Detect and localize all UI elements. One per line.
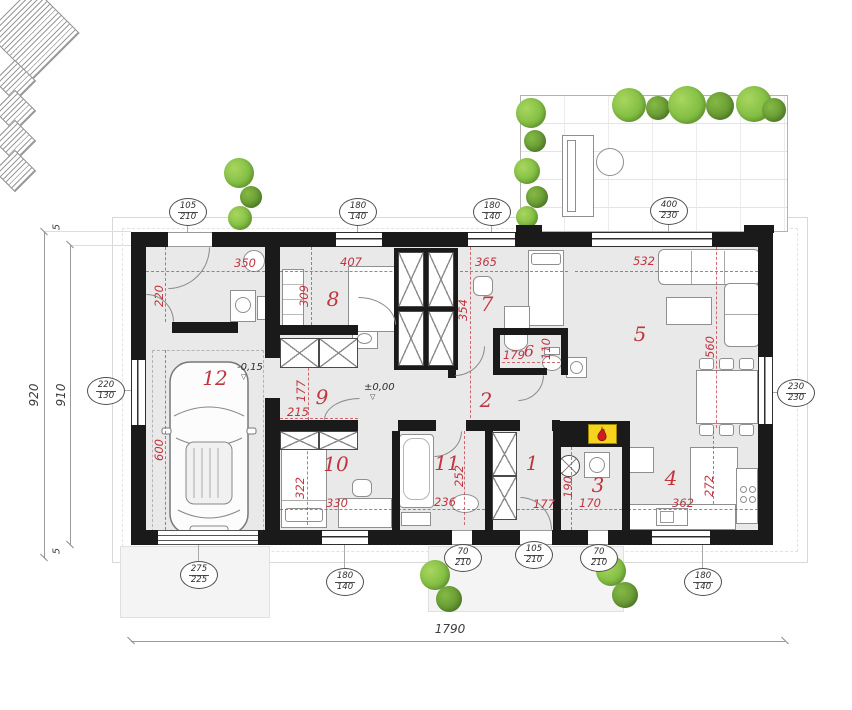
wall <box>131 530 158 545</box>
overall-height-inner: 910 <box>54 384 68 407</box>
plant-icon <box>612 582 638 608</box>
dim-ext-line <box>44 231 131 232</box>
dim-label: 350 <box>234 256 256 270</box>
wall <box>608 530 652 545</box>
leader-line <box>198 545 199 561</box>
opening-height: 140 <box>484 213 500 223</box>
wardrobe-x <box>492 432 517 476</box>
pillow <box>285 508 323 522</box>
level-marker: -0,15 <box>237 362 263 373</box>
wall <box>382 232 468 247</box>
opening-width: 70 <box>592 548 607 559</box>
bathtub-inner <box>403 438 430 500</box>
plant-icon <box>668 86 706 124</box>
dining-chair <box>699 424 714 436</box>
plant-icon <box>612 88 646 122</box>
opening-width: 275 <box>189 565 209 576</box>
room-number: 4 <box>665 466 678 490</box>
overall-width: 1790 <box>435 622 466 636</box>
plant-icon <box>436 586 462 612</box>
dim-label: 220 <box>152 285 166 307</box>
plant-icon <box>646 96 670 120</box>
fireplace <box>588 424 617 444</box>
room-number: 6 <box>524 342 534 361</box>
boiler-dial <box>235 297 251 313</box>
window <box>468 232 515 247</box>
room-number: 5 <box>634 322 647 346</box>
garage-door <box>158 530 258 545</box>
opening-size-badge: 105210 <box>515 541 553 569</box>
room-number: 1 <box>526 451 539 475</box>
dining-chair <box>699 358 714 370</box>
wall-thickness-top: 5 <box>52 224 63 230</box>
opening-width: 70 <box>456 548 471 559</box>
opening-size-badge: 230230 <box>777 379 815 407</box>
opening-width: 180 <box>335 572 355 583</box>
wall <box>392 431 400 530</box>
dim-label: 179 <box>503 348 525 362</box>
terrace-bench-seat <box>567 140 576 212</box>
wall <box>758 232 773 357</box>
dim-label: 215 <box>287 405 309 419</box>
dining-chair <box>739 424 754 436</box>
terrace-round-table <box>596 148 624 176</box>
opening-height: 140 <box>695 583 711 593</box>
opening-width: 400 <box>659 201 679 212</box>
dim-line-overall <box>131 641 785 642</box>
wall <box>212 232 336 247</box>
opening-height: 140 <box>350 213 366 223</box>
fridge <box>628 447 654 473</box>
dim-label: 309 <box>297 285 311 307</box>
sofa-cushion-line <box>691 251 692 284</box>
wall <box>553 431 561 530</box>
sofa <box>658 249 760 285</box>
wall <box>265 398 280 530</box>
wall <box>278 325 358 335</box>
opening-size-badge: 70210 <box>580 544 618 572</box>
dim-label: 560 <box>703 336 717 358</box>
dim-label: 407 <box>340 255 362 269</box>
dim-line-overall <box>70 245 71 545</box>
opening-size-badge: 70210 <box>444 544 482 572</box>
cooktop-burner <box>749 496 756 503</box>
door-opening <box>588 530 608 545</box>
washing-machine-door <box>589 457 605 473</box>
wardrobe-x <box>428 311 454 366</box>
dim-label: 322 <box>293 477 307 499</box>
dim-label: 177 <box>533 497 555 511</box>
wall <box>265 247 280 358</box>
opening-size-badge: 400230 <box>650 197 688 225</box>
wardrobe-x <box>280 338 319 368</box>
kitchen-sink-bowl <box>660 511 674 523</box>
washbasin-bowl <box>357 333 372 344</box>
room-number: 8 <box>327 287 340 311</box>
dim-ext-line <box>70 245 131 246</box>
room-number: 2 <box>480 388 493 412</box>
opening-width: 180 <box>482 202 502 213</box>
plant-icon <box>516 98 546 128</box>
opening-height: 210 <box>455 559 471 569</box>
wall <box>258 530 322 545</box>
sofa-cushion-line <box>724 251 725 284</box>
bath-cabinet <box>401 512 431 526</box>
leader-line <box>344 545 345 568</box>
dim-label: 362 <box>672 496 694 510</box>
opening-size-badge: 180140 <box>684 568 722 596</box>
opening-width: 180 <box>348 202 368 213</box>
wall <box>515 232 592 247</box>
dim-line <box>575 271 758 272</box>
dim-line-overall <box>44 232 45 558</box>
dim-label: 170 <box>579 496 601 510</box>
coffee-table <box>666 297 712 325</box>
window <box>652 530 710 545</box>
room-number: 10 <box>323 452 348 476</box>
window <box>758 357 773 424</box>
opening-height: 210 <box>180 213 196 223</box>
room-number: 12 <box>202 366 227 390</box>
dim-line <box>470 247 471 428</box>
wardrobe-x <box>319 338 358 368</box>
plant-icon <box>762 98 786 122</box>
wall <box>278 420 358 431</box>
wall <box>131 232 146 360</box>
door-opening <box>452 530 472 545</box>
plant-icon <box>224 158 254 188</box>
wall-thickness-bottom: 5 <box>52 548 63 554</box>
dim-label: 177 <box>294 380 308 402</box>
dim-label: 110 <box>539 338 553 360</box>
floor-drain <box>558 455 580 477</box>
wall <box>398 420 436 431</box>
dim-line <box>455 271 568 272</box>
opening-width: 180 <box>693 572 713 583</box>
dim-label: 236 <box>434 495 456 509</box>
wall <box>552 420 560 431</box>
plant-icon <box>524 130 546 152</box>
wardrobe-x <box>319 431 358 450</box>
opening-size-badge: 180140 <box>339 198 377 226</box>
opening-width: 230 <box>786 383 806 394</box>
dim-label: 532 <box>633 254 655 268</box>
terrace-chair <box>0 150 36 192</box>
dim-label: 365 <box>475 255 497 269</box>
opening-size-badge: 275225 <box>180 561 218 589</box>
dim-line <box>398 509 485 510</box>
dim-label: 354 <box>456 299 470 321</box>
cooktop-burner <box>749 486 756 493</box>
opening-width: 220 <box>96 381 116 392</box>
dim-label: 600 <box>152 439 166 461</box>
wardrobe-x <box>280 431 319 450</box>
opening-height: 225 <box>191 576 207 586</box>
chair <box>352 479 372 497</box>
flame-icon <box>595 426 609 443</box>
dim-line <box>497 362 565 363</box>
bed-line <box>282 500 326 501</box>
opening-size-badge: 180140 <box>326 568 364 596</box>
wall <box>131 425 146 545</box>
wall <box>758 424 773 545</box>
dim-line <box>311 247 312 325</box>
plant-icon <box>240 186 262 208</box>
overall-height-outer: 920 <box>27 384 41 407</box>
dining-chair <box>719 358 734 370</box>
wardrobe-x <box>492 476 517 520</box>
sofa-cushion-line <box>725 314 759 315</box>
wardrobe-x <box>398 311 424 366</box>
dining-chair <box>739 358 754 370</box>
wardrobe-x <box>428 252 454 307</box>
dining-chair <box>719 424 734 436</box>
washing-machine-door <box>570 361 583 374</box>
opening-size-badge: 220130 <box>87 377 125 405</box>
leader-line <box>702 545 703 568</box>
cooktop-burner <box>740 496 747 503</box>
dim-label: 272 <box>702 475 716 497</box>
wall <box>493 368 547 375</box>
opening-height: 210 <box>526 556 542 566</box>
wall <box>466 420 520 431</box>
dining-table <box>696 370 758 424</box>
dim-label: 252 <box>452 465 466 487</box>
plant-icon <box>514 158 540 184</box>
wall <box>472 530 520 545</box>
wardrobe-x <box>398 252 424 307</box>
opening-height: 230 <box>788 394 804 404</box>
level-triangle-icon: ▽ <box>370 393 375 401</box>
door-opening <box>168 232 212 247</box>
wall <box>710 530 773 545</box>
window <box>131 360 146 425</box>
level-triangle-icon: ▽ <box>241 373 246 381</box>
dim-line <box>146 271 265 272</box>
opening-height: 230 <box>661 212 677 222</box>
wall <box>552 530 588 545</box>
plant-icon <box>706 92 734 120</box>
dim-label: 330 <box>326 496 348 510</box>
opening-width: 105 <box>524 545 544 556</box>
wall <box>368 530 452 545</box>
terrace-door-window <box>592 232 712 247</box>
dim-label: 190 <box>561 476 575 498</box>
window <box>336 232 382 247</box>
pillow <box>531 253 561 265</box>
wall <box>561 335 568 375</box>
sofa-chaise <box>724 283 760 347</box>
floor-plan: 12 8 9 7 6 2 5 10 11 1 3 4 350 220 600 4… <box>0 0 852 710</box>
terrace-wall-stub <box>516 225 542 233</box>
wall <box>622 447 630 530</box>
opening-size-badge: 105210 <box>169 198 207 226</box>
wall <box>172 322 238 333</box>
opening-height: 210 <box>591 559 607 569</box>
opening-height: 130 <box>98 392 114 402</box>
opening-size-badge: 180140 <box>473 198 511 226</box>
opening-height: 140 <box>337 583 353 593</box>
plant-icon <box>228 206 252 230</box>
wall <box>493 328 568 335</box>
room-number: 9 <box>316 385 329 409</box>
window <box>322 530 368 545</box>
terrace-wall-stub <box>744 225 774 233</box>
level-marker: ±0,00 <box>364 382 395 393</box>
desk <box>504 306 530 330</box>
room-number: 3 <box>592 473 605 497</box>
room-number: 7 <box>481 292 494 316</box>
cooktop-burner <box>740 486 747 493</box>
plant-icon <box>526 186 548 208</box>
opening-width: 105 <box>178 202 198 213</box>
